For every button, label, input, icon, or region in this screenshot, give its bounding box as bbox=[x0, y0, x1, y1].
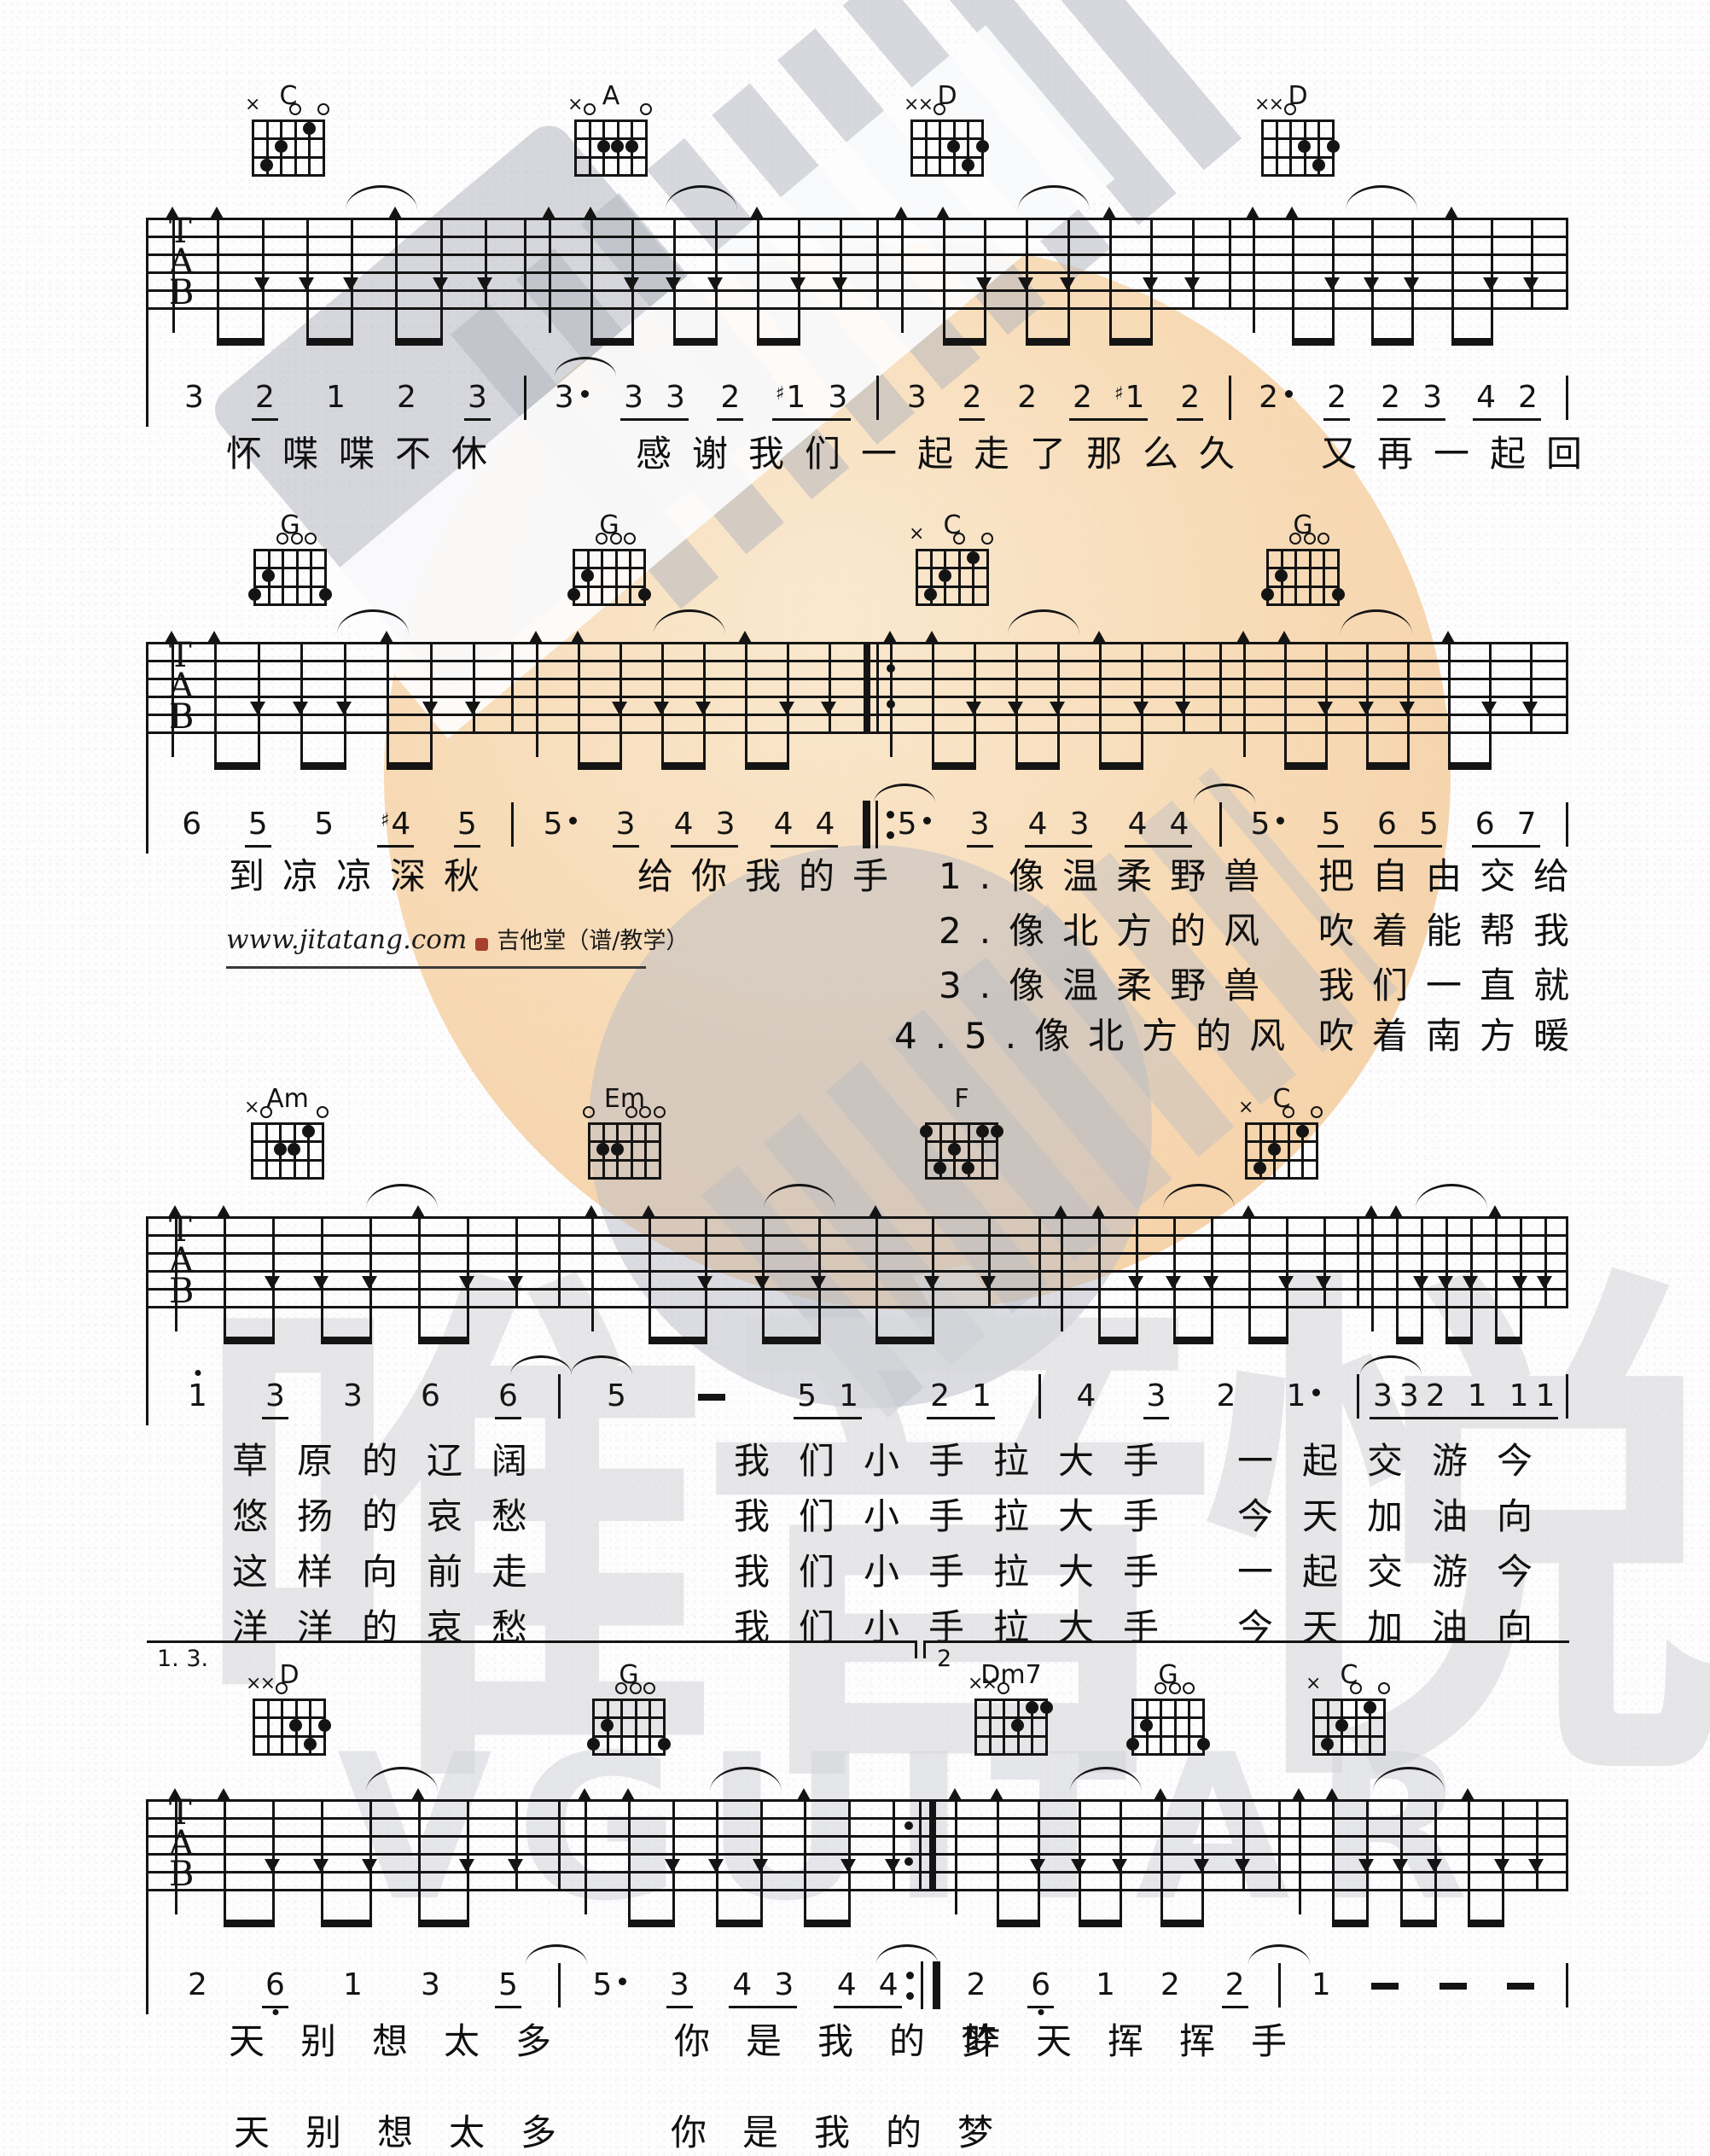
number-note: 4 bbox=[837, 1970, 857, 2001]
strum-line bbox=[1079, 1799, 1081, 1889]
number-measure: 4321 bbox=[1051, 1381, 1346, 1436]
note-group: 5 bbox=[603, 1381, 630, 1417]
chord-grid-line bbox=[588, 1122, 590, 1179]
strum-up-arrowhead bbox=[1284, 207, 1300, 220]
strum-line bbox=[1531, 218, 1533, 307]
strum-line bbox=[1366, 642, 1369, 731]
chord-grid-line bbox=[322, 1122, 324, 1179]
beamed-note-group: 5 bbox=[1317, 809, 1344, 848]
chord-finger-dot bbox=[1253, 1162, 1266, 1174]
tab-staff-line bbox=[147, 236, 1567, 238]
number-tie-arc bbox=[1194, 784, 1255, 803]
beamed-note-group: 43 bbox=[1025, 809, 1093, 848]
strum-down-arrowhead bbox=[1071, 1859, 1086, 1873]
note-digit: 2 bbox=[1426, 1378, 1445, 1413]
strum-down-arrowhead bbox=[821, 702, 836, 715]
chord-label: G bbox=[1115, 1663, 1221, 1688]
strum-up-arrowhead bbox=[209, 207, 224, 220]
strum-down-arrowhead bbox=[811, 1276, 826, 1290]
stamp-icon bbox=[475, 938, 488, 951]
number-note: 1 bbox=[1468, 1381, 1487, 1412]
sharp-accidental: ♯ bbox=[381, 810, 390, 831]
open-string-marker bbox=[584, 103, 596, 115]
note-digit: 4 bbox=[816, 807, 835, 842]
strum-down-arrowhead bbox=[362, 1859, 377, 1873]
lyric-segment: 把自由交给 bbox=[1318, 856, 1587, 897]
open-string-marker bbox=[276, 533, 288, 545]
chord-finger-dot bbox=[274, 1143, 287, 1156]
note-beam bbox=[1173, 1337, 1213, 1344]
strum-line bbox=[1495, 1216, 1498, 1306]
chord-grid-line bbox=[265, 1122, 268, 1179]
number-measure: 32123 bbox=[159, 382, 513, 437]
strum-line bbox=[1371, 218, 1374, 307]
number-barline bbox=[146, 1374, 148, 1419]
chord-grid-line bbox=[253, 549, 327, 551]
note-digit: 2 bbox=[1160, 1967, 1180, 2002]
augmentation-dot bbox=[1312, 1389, 1320, 1396]
note-group: 3 bbox=[904, 382, 930, 418]
chord-grid-line bbox=[1261, 137, 1335, 140]
chord-finger-dot bbox=[920, 1125, 933, 1138]
note-beam bbox=[997, 1920, 1040, 1927]
note-digit: 2 bbox=[966, 1967, 986, 2002]
strum-line bbox=[943, 218, 945, 307]
number-note: 5 bbox=[1250, 809, 1284, 840]
chord-grid-line bbox=[1261, 119, 1264, 176]
strum-line bbox=[890, 642, 893, 731]
strum-up-arrowhead bbox=[1091, 631, 1107, 644]
note-beam bbox=[418, 1337, 469, 1344]
note-beam bbox=[1026, 338, 1070, 346]
note-beam bbox=[1098, 1337, 1138, 1344]
open-string-marker bbox=[1155, 1682, 1166, 1694]
beamed-note-group: 43 bbox=[729, 1970, 797, 2008]
strum-line bbox=[762, 1216, 765, 1306]
beamed-note-group: 5 bbox=[454, 809, 480, 848]
chord-finger-dot bbox=[318, 1719, 331, 1732]
note-stem bbox=[172, 731, 174, 757]
lyric-segment: 我们小手拉大手 bbox=[734, 1552, 1188, 1593]
open-string-marker bbox=[1311, 1106, 1323, 1118]
strum-down-arrowhead bbox=[790, 277, 806, 291]
chord-grid-line bbox=[644, 1122, 647, 1179]
strum-up-arrowhead bbox=[1053, 1205, 1068, 1219]
tab-staff-line bbox=[147, 1234, 1567, 1237]
chord-grid-line bbox=[592, 1753, 666, 1756]
strum-down-arrowhead bbox=[1060, 277, 1075, 291]
strum-down-arrowhead bbox=[654, 702, 669, 715]
strum-line bbox=[1211, 1216, 1213, 1306]
strum-down-arrowhead bbox=[666, 277, 681, 291]
strum-line bbox=[1286, 1216, 1288, 1306]
number-note: 4 bbox=[674, 809, 694, 840]
note-digit: 2 bbox=[1217, 1378, 1236, 1413]
number-note: 4 bbox=[1077, 1381, 1096, 1412]
note-digit: 3 bbox=[343, 1378, 363, 1413]
tab-barline bbox=[1229, 218, 1231, 310]
chord-finger-dot bbox=[303, 122, 316, 135]
number-barline bbox=[1566, 802, 1568, 847]
open-string-marker bbox=[1282, 1106, 1294, 1118]
chord-grid-line bbox=[974, 1699, 977, 1755]
beamed-note-group: 51 bbox=[794, 1381, 862, 1419]
strum-line bbox=[585, 1799, 587, 1889]
strum-down-arrowhead bbox=[624, 277, 639, 291]
strum-line bbox=[172, 218, 175, 307]
chord-finger-dot bbox=[611, 140, 624, 153]
strum-down-arrowhead bbox=[1133, 702, 1149, 715]
strum-up-arrowhead bbox=[1440, 631, 1456, 644]
tab-staff-line bbox=[147, 271, 1567, 274]
strum-up-arrowhead bbox=[620, 1788, 636, 1802]
note-digit: 3 bbox=[1399, 1378, 1419, 1413]
chord-grid-line bbox=[589, 119, 591, 176]
strum-up-arrowhead bbox=[577, 1788, 592, 1802]
chord-grid-line bbox=[588, 1122, 661, 1125]
tab-staff-line bbox=[147, 218, 1567, 220]
note-digit: 1 bbox=[343, 1967, 363, 2002]
number-measure: 534344 bbox=[571, 1970, 920, 2025]
open-string-marker bbox=[639, 1106, 651, 1118]
chord-finger-dot bbox=[924, 588, 937, 601]
open-string-marker bbox=[260, 1106, 272, 1118]
strum-line bbox=[757, 218, 759, 307]
chord-grid-line bbox=[588, 1140, 661, 1143]
note-stem bbox=[1253, 307, 1255, 333]
number-note: 1 bbox=[839, 1381, 858, 1412]
strum-line bbox=[172, 642, 174, 731]
strum-line bbox=[300, 642, 303, 731]
strum-down-arrowhead bbox=[508, 1276, 523, 1290]
chord-grid-line bbox=[974, 1699, 1048, 1701]
strum-line bbox=[1489, 642, 1492, 731]
note-group bbox=[695, 1381, 729, 1406]
chord-finger-dot bbox=[289, 1719, 302, 1732]
tab-barline bbox=[524, 218, 526, 310]
muted-string-marker: × bbox=[918, 96, 934, 114]
note-stem bbox=[536, 731, 538, 757]
number-note: 3 bbox=[184, 382, 204, 413]
number-note: 2 bbox=[930, 1381, 950, 1412]
open-string-marker bbox=[610, 533, 622, 545]
number-note: 4 bbox=[816, 809, 835, 840]
strum-line bbox=[272, 1799, 275, 1889]
muted-string-marker: × bbox=[245, 96, 260, 114]
repeat-dot bbox=[904, 1857, 913, 1866]
number-note: 4 bbox=[879, 1970, 899, 2001]
strum-down-arrowhead bbox=[1175, 702, 1190, 715]
note-beam bbox=[804, 1920, 851, 1927]
number-note: 2 bbox=[1180, 382, 1200, 413]
number-note: 5 bbox=[607, 1381, 626, 1412]
note-beam bbox=[1015, 762, 1060, 770]
chord-finger-dot bbox=[625, 140, 638, 153]
number-note: 2 bbox=[1259, 382, 1293, 413]
muted-string-marker: × bbox=[1306, 1675, 1321, 1693]
strum-line bbox=[1536, 1799, 1538, 1889]
number-note: 2 bbox=[397, 382, 416, 413]
strum-down-arrowhead bbox=[362, 1276, 377, 1290]
open-string-marker bbox=[1169, 1682, 1181, 1694]
chord-grid-line bbox=[1245, 1140, 1318, 1143]
beamed-note-group: 5 bbox=[495, 1970, 521, 2008]
beamed-note-group: 2 bbox=[1177, 382, 1203, 421]
chord-grid-line bbox=[1261, 119, 1335, 122]
note-digit: 5 bbox=[544, 807, 563, 842]
strum-down-arrowhead bbox=[1316, 1276, 1331, 1290]
note-beam bbox=[1400, 1920, 1437, 1927]
number-note: 5 bbox=[248, 809, 268, 840]
note-beam bbox=[661, 762, 706, 770]
tie-arc bbox=[1373, 1767, 1445, 1792]
strum-line bbox=[1243, 642, 1246, 731]
note-digit: 6 bbox=[1377, 807, 1397, 842]
note-group: 2 bbox=[393, 382, 420, 418]
chord-finger-dot bbox=[638, 588, 651, 601]
note-group: 5 bbox=[894, 809, 935, 845]
beamed-note-group: 44 bbox=[834, 1970, 902, 2008]
note-beam bbox=[1284, 762, 1328, 770]
note-digit: 2 bbox=[1225, 1967, 1245, 2002]
strum-down-arrowhead bbox=[612, 702, 627, 715]
note-digit: 3 bbox=[907, 380, 927, 415]
chord-grid-line bbox=[910, 174, 984, 177]
lyric-segment: 悠扬的哀愁 bbox=[232, 1496, 556, 1537]
number-note: 3 bbox=[970, 809, 990, 840]
note-group: 1 bbox=[323, 382, 349, 418]
note-digit: 4 bbox=[1128, 807, 1148, 842]
number-note: 3 bbox=[468, 382, 487, 413]
tie-arc bbox=[366, 1184, 438, 1209]
strum-up-arrowhead bbox=[1245, 207, 1260, 220]
chord-grid-line bbox=[251, 1177, 324, 1180]
note-digit: 3 bbox=[716, 807, 736, 842]
number-barline bbox=[511, 802, 514, 847]
chord-grid-line bbox=[1288, 1122, 1290, 1179]
number-note: 3 bbox=[343, 1381, 363, 1412]
strum-line bbox=[848, 1799, 851, 1889]
strum-down-arrowhead bbox=[707, 277, 723, 291]
strum-line bbox=[1242, 1799, 1245, 1889]
note-digit: 1 bbox=[1509, 1378, 1529, 1413]
number-note: 3 bbox=[670, 1970, 689, 2001]
note-digit: 7 bbox=[1517, 807, 1537, 842]
open-string-marker bbox=[276, 1682, 288, 1694]
low-octave-dot bbox=[1038, 2009, 1044, 2015]
tie-arc bbox=[1163, 1184, 1235, 1209]
note-group: 4 bbox=[1073, 1381, 1100, 1417]
strum-line bbox=[984, 218, 986, 307]
strum-line bbox=[760, 1799, 763, 1889]
number-note: 6 bbox=[1377, 809, 1397, 840]
number-barline bbox=[1566, 376, 1568, 420]
beamed-note-group: 3 bbox=[464, 382, 491, 421]
note-digit: 5 bbox=[314, 807, 334, 842]
lyric-segment: 草原的辽阔 bbox=[232, 1441, 556, 1482]
lyric-segment: 吹着南方暖 bbox=[1318, 1016, 1587, 1057]
note-digit: 1 bbox=[326, 380, 346, 415]
open-string-marker bbox=[1284, 103, 1296, 115]
guitar-tab-sheet: 唯音悦 VGUITAR C×A×D××D××TAB321233332♯13322… bbox=[0, 0, 1710, 2156]
strum-line bbox=[175, 1799, 177, 1889]
number-note: ♯1 bbox=[1114, 382, 1145, 413]
strum-up-arrowhead bbox=[1487, 1205, 1503, 1219]
note-digit: 3 bbox=[624, 380, 643, 415]
strum-line bbox=[1067, 218, 1070, 307]
open-string-marker bbox=[953, 533, 965, 545]
strum-up-arrowhead bbox=[935, 207, 951, 220]
beamed-note-group: 2 bbox=[717, 382, 743, 421]
tab-staff-line bbox=[147, 307, 1567, 310]
chord-grid-line bbox=[910, 156, 984, 159]
strum-line bbox=[1530, 642, 1533, 731]
chord-grid-line bbox=[573, 603, 646, 606]
strum-line bbox=[217, 218, 219, 307]
strum-down-arrowhead bbox=[508, 1859, 523, 1873]
chord-grid-line bbox=[1003, 1699, 1005, 1755]
lyric-segment: 我们小手拉大手 bbox=[734, 1441, 1188, 1482]
note-group bbox=[1436, 1970, 1470, 1995]
strum-down-arrowhead bbox=[1358, 1859, 1374, 1873]
lyric-segment: 今天加油向 bbox=[1237, 1496, 1562, 1537]
number-note: 5 bbox=[797, 1381, 817, 1412]
note-digit: 2 bbox=[1259, 380, 1278, 415]
number-measure: 1 bbox=[1291, 1970, 1555, 2025]
number-note: 2 bbox=[1426, 1381, 1445, 1412]
note-stem bbox=[1371, 1306, 1374, 1331]
note-beam bbox=[306, 338, 353, 346]
strum-up-arrowhead bbox=[1241, 1205, 1256, 1219]
number-measure: 55121 bbox=[571, 1381, 1027, 1436]
number-barline bbox=[1038, 1374, 1041, 1419]
strum-line bbox=[1411, 218, 1414, 307]
open-string-marker bbox=[305, 533, 317, 545]
beamed-note-group: 6 bbox=[1027, 1970, 1054, 2008]
strum-up-arrowhead bbox=[583, 207, 598, 220]
note-digit: 4 bbox=[1170, 807, 1189, 842]
strum-line bbox=[1468, 1799, 1470, 1889]
strum-up-arrowhead bbox=[1291, 1788, 1306, 1802]
strum-down-arrowhead bbox=[293, 702, 308, 715]
beamed-note-group: 3 bbox=[967, 809, 993, 848]
note-digit: 2 bbox=[1017, 380, 1037, 415]
strum-line bbox=[1160, 1799, 1163, 1889]
strum-line bbox=[344, 642, 346, 731]
number-note: 1 bbox=[1536, 1381, 1556, 1412]
note-group: 3 bbox=[551, 382, 592, 418]
open-string-marker bbox=[1378, 1682, 1390, 1694]
strum-line bbox=[262, 218, 265, 307]
note-group: 3 bbox=[181, 382, 207, 418]
muted-string-marker: × bbox=[567, 96, 583, 114]
number-tie-arc bbox=[510, 1355, 572, 1375]
chord-grid-line bbox=[252, 174, 325, 177]
strum-line bbox=[1544, 1216, 1547, 1306]
note-beam bbox=[716, 1920, 763, 1927]
note-beam bbox=[1248, 1337, 1288, 1344]
number-note: 2 bbox=[1381, 382, 1400, 413]
strum-down-arrowhead bbox=[1317, 702, 1333, 715]
chord-grid-line bbox=[916, 549, 918, 605]
note-beam bbox=[418, 1920, 469, 1927]
strum-line bbox=[306, 218, 309, 307]
chord-label: F bbox=[909, 1087, 1015, 1112]
note-beam bbox=[578, 762, 622, 770]
chord-grid-line bbox=[1276, 119, 1278, 176]
number-note: 2 bbox=[255, 382, 275, 413]
chord-grid-line bbox=[1261, 156, 1335, 159]
chord-grid-line bbox=[281, 1699, 283, 1755]
tab-staff-line bbox=[147, 1889, 1567, 1891]
chord-finger-dot bbox=[611, 1143, 624, 1156]
number-barline bbox=[1566, 1963, 1568, 2007]
strum-down-arrowhead bbox=[779, 702, 794, 715]
repeat-end-thin-bar bbox=[919, 1799, 922, 1891]
chord-grid-line bbox=[1266, 549, 1340, 551]
tab-barline bbox=[146, 1216, 148, 1308]
chord-grid-line bbox=[1266, 567, 1340, 569]
strum-line bbox=[369, 1216, 372, 1306]
chord-grid-line bbox=[1245, 1159, 1318, 1162]
tab-staff-line bbox=[147, 1799, 1567, 1802]
note-beam bbox=[757, 338, 801, 346]
beamed-note-group: 3 bbox=[613, 809, 639, 848]
strum-down-arrowhead bbox=[695, 702, 711, 715]
chord-finger-dot bbox=[948, 1143, 961, 1156]
chord-grid-line bbox=[1316, 1122, 1318, 1179]
note-digit: 4 bbox=[879, 1967, 899, 2002]
chord-finger-dot bbox=[597, 140, 610, 153]
beamed-note-group: ♯13 bbox=[772, 382, 851, 421]
number-note: 2 bbox=[966, 1970, 986, 2001]
number-barline bbox=[524, 376, 526, 420]
number-note: 2 bbox=[1160, 1970, 1180, 2001]
strum-up-arrowhead bbox=[641, 1205, 656, 1219]
beamed-note-group: 3 bbox=[1370, 1381, 1396, 1419]
strum-line bbox=[1332, 1799, 1335, 1889]
muted-string-marker: × bbox=[1269, 96, 1284, 114]
note-digit: 4 bbox=[1077, 1378, 1096, 1413]
chord-finger-dot bbox=[1335, 1719, 1348, 1732]
number-barline bbox=[146, 376, 148, 420]
chord-grid-line bbox=[645, 119, 648, 176]
strum-up-arrowhead bbox=[584, 1205, 599, 1219]
note-stem bbox=[1061, 1306, 1063, 1331]
open-string-marker bbox=[981, 533, 993, 545]
note-beam bbox=[649, 1337, 707, 1344]
strum-line bbox=[997, 1799, 999, 1889]
number-barline bbox=[558, 1374, 561, 1419]
beamed-note-group: 65 bbox=[1374, 809, 1442, 848]
tie-arc bbox=[764, 1184, 835, 1209]
tie-arc bbox=[1008, 609, 1079, 634]
number-note: 4 bbox=[732, 1970, 752, 2001]
strum-line bbox=[818, 1216, 821, 1306]
chord-grid-line bbox=[615, 549, 618, 605]
strum-line bbox=[515, 1799, 518, 1889]
number-note: 6 bbox=[265, 1970, 285, 2001]
strum-line bbox=[1109, 218, 1112, 307]
note-digit: 3 bbox=[616, 807, 636, 842]
note-digit: 5 bbox=[457, 807, 477, 842]
chord-grid-line bbox=[573, 567, 646, 569]
lyric-segment: 给你我的手 bbox=[637, 856, 906, 897]
note-digit: 1 bbox=[1536, 1378, 1556, 1413]
note-stem bbox=[585, 1889, 587, 1914]
open-string-marker bbox=[1289, 533, 1301, 545]
chord-finger-dot bbox=[601, 1719, 614, 1732]
